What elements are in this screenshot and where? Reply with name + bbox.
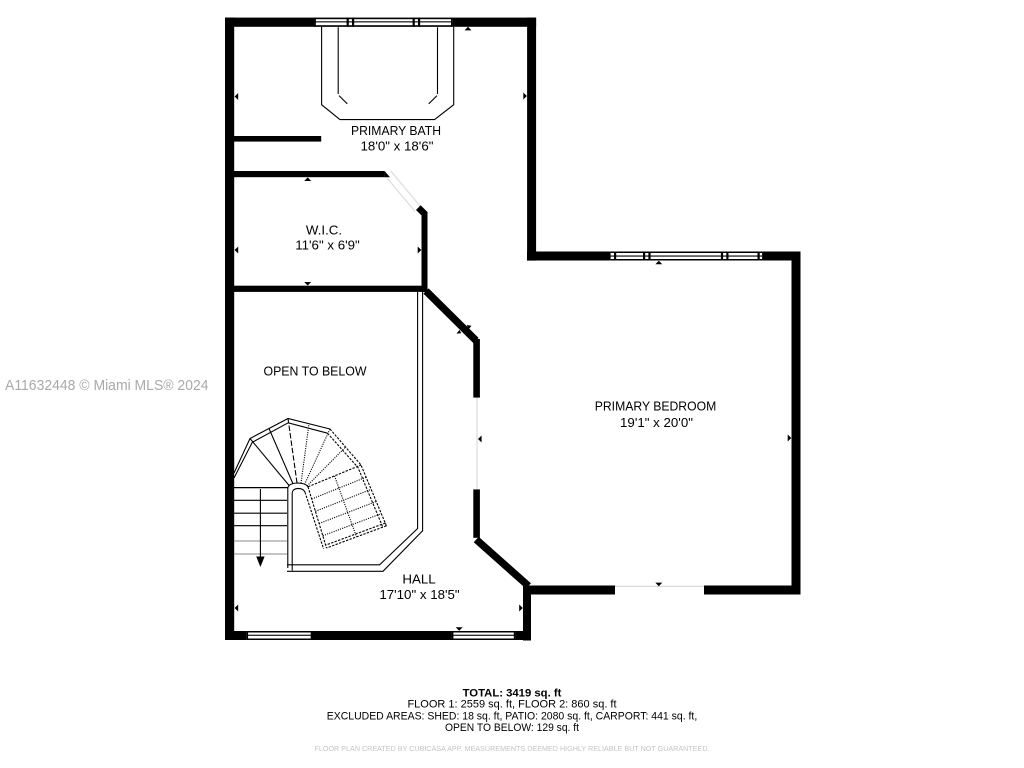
svg-text:17'10" x 18'5": 17'10" x 18'5" xyxy=(379,587,460,602)
svg-text:FLOOR 1: 2559 sq. ft, FLOOR 2:: FLOOR 1: 2559 sq. ft, FLOOR 2: 860 sq. f… xyxy=(407,699,616,711)
svg-text:PRIMARY BATH: PRIMARY BATH xyxy=(351,123,441,138)
svg-text:OPEN TO BELOW: 129 sq. ft: OPEN TO BELOW: 129 sq. ft xyxy=(445,722,579,734)
svg-text:EXCLUDED AREAS: SHED: 18 sq. f: EXCLUDED AREAS: SHED: 18 sq. ft, PATIO: … xyxy=(327,711,698,723)
svg-text:19'1" x 20'0": 19'1" x 20'0" xyxy=(620,415,693,430)
svg-text:HALL: HALL xyxy=(402,572,435,587)
svg-text:18'0" x 18'6": 18'0" x 18'6" xyxy=(361,139,434,154)
svg-text:A11632448 © Miami MLS® 2024: A11632448 © Miami MLS® 2024 xyxy=(5,377,209,394)
svg-text:TOTAL: 3419 sq. ft: TOTAL: 3419 sq. ft xyxy=(463,687,562,699)
svg-text:FLOOR PLAN CREATED BY CUBICASA: FLOOR PLAN CREATED BY CUBICASA APP. MEAS… xyxy=(315,744,710,753)
svg-text:11'6" x 6'9": 11'6" x 6'9" xyxy=(295,238,360,253)
svg-text:OPEN TO BELOW: OPEN TO BELOW xyxy=(264,364,367,379)
svg-text:W.I.C.: W.I.C. xyxy=(306,223,342,238)
svg-text:PRIMARY BEDROOM: PRIMARY BEDROOM xyxy=(595,399,717,414)
